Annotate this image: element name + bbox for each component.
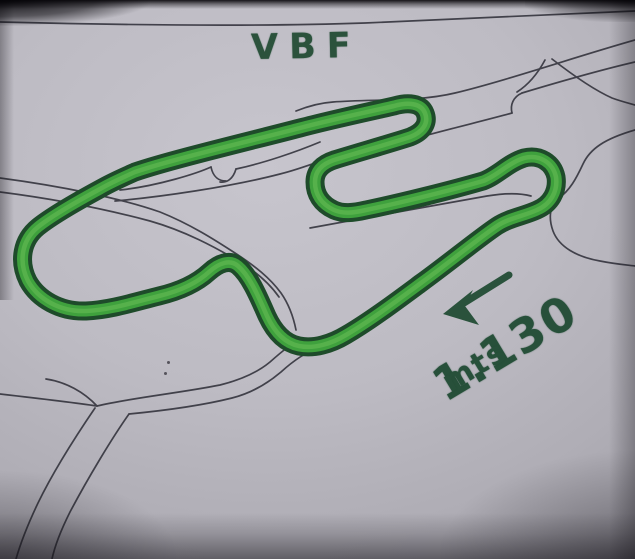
photo-corner-shadow [0,469,180,559]
photo-right-shadow [609,0,635,559]
photo-corner-dark [525,0,635,22]
photo-corner-shadow [435,449,635,559]
paper-speck [164,372,167,375]
track-title: VBF [251,26,363,68]
photo-left-shadow [0,0,14,300]
direction-arrow-icon [443,275,509,325]
paper-speck [167,361,170,364]
track-map-photo: VBF 1.130 mts [0,0,635,559]
photo-corner-dark [0,0,150,26]
